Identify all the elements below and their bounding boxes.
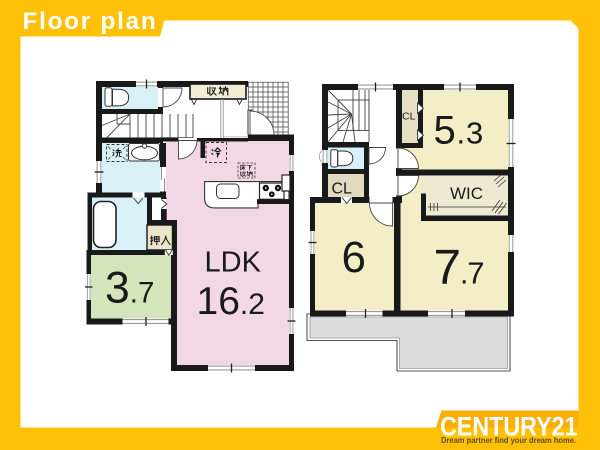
svg-text:Floor plan: Floor plan: [23, 8, 158, 35]
svg-text:CL: CL: [332, 181, 353, 198]
svg-text:6: 6: [342, 233, 366, 282]
svg-text:5.3: 5.3: [434, 109, 485, 153]
svg-text:CL: CL: [402, 111, 416, 123]
svg-text:Dream partner find your dream: Dream partner find your dream home.: [441, 436, 576, 445]
svg-text:LDK: LDK: [205, 247, 262, 279]
svg-text:WIC: WIC: [450, 184, 483, 203]
